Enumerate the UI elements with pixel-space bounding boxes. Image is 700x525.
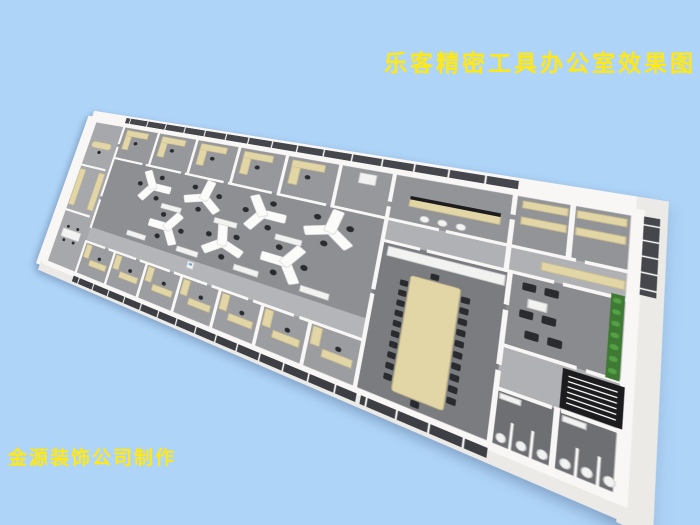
window-mullion <box>463 438 464 448</box>
interior-wall <box>513 192 516 213</box>
desk-arm <box>217 223 228 246</box>
studio-caption: 金源装饰公司制作 <box>8 443 176 470</box>
window-mullion <box>448 170 449 178</box>
office-rendering-page: 乐客精密工具办公室效果图 金源装饰公司制作 <box>0 0 700 525</box>
window-mullion <box>428 424 429 433</box>
window-mullion <box>485 176 486 184</box>
page-title: 乐客精密工具办公室效果图 <box>384 44 696 78</box>
